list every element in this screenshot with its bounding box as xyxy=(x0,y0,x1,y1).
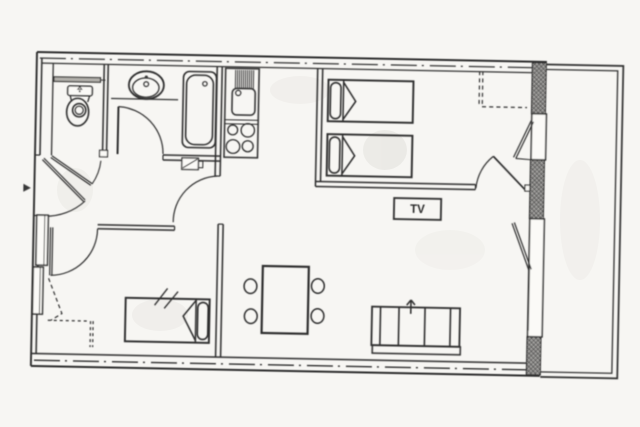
svg-text:TV: TV xyxy=(410,204,425,216)
